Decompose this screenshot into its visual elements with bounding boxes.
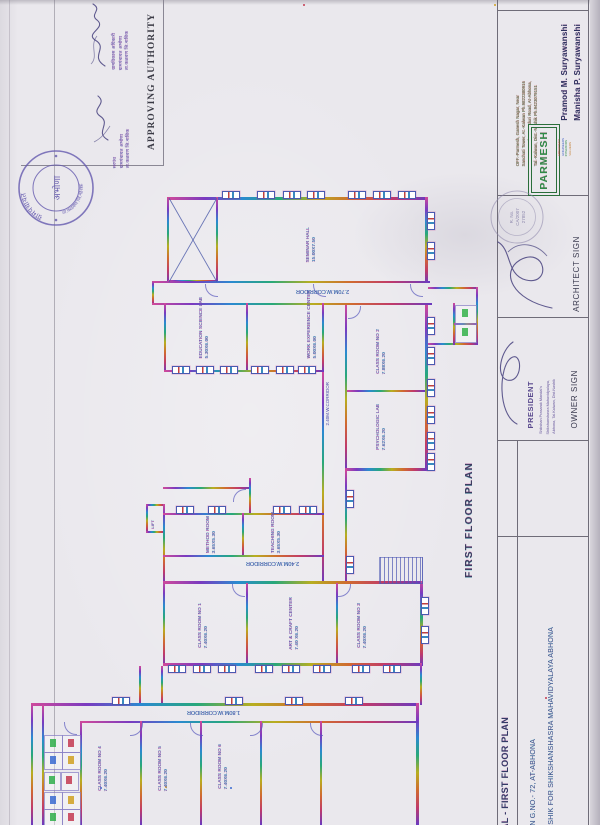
window <box>427 347 435 365</box>
wall <box>428 287 478 289</box>
room-dim: 15.00X7.50 <box>311 237 317 262</box>
wall <box>425 197 428 283</box>
window <box>427 317 435 335</box>
room-label-teaching-room: TEACHING ROOM 3.65X5.30 <box>270 521 282 553</box>
wall <box>139 666 141 705</box>
wall <box>152 303 432 305</box>
toilet-fixture-icon <box>462 328 468 336</box>
window <box>193 665 211 673</box>
toilet-fixture-icon <box>68 756 74 764</box>
wall <box>140 721 142 825</box>
room-name: LIFT <box>150 520 156 529</box>
toilet-fixture-icon <box>50 739 56 747</box>
toilet-fixture-icon <box>50 796 56 804</box>
room-label-class-room-3: CLASS ROOM NO 3 7.40X6.20 <box>356 596 368 648</box>
door-arc-icon <box>64 722 77 735</box>
corridor-text: 2.40M.W.CORRIDOR <box>325 382 330 426</box>
corridor-label-180: 1.80M.W.CORRIDOR <box>187 709 240 715</box>
corridor-label-270: 2.70M.W.CORRIDOR <box>296 288 349 294</box>
window <box>176 506 194 514</box>
window <box>283 191 301 199</box>
door-arc-icon <box>190 723 203 736</box>
toilet-fixture-icon <box>68 739 74 747</box>
wall <box>345 468 427 471</box>
window <box>307 191 325 199</box>
floor-plan <box>0 0 600 825</box>
room-label-seminar-hall: SEMINAR HALL 15.00X7.50 <box>305 220 317 262</box>
window <box>421 626 429 644</box>
window <box>352 665 370 673</box>
scan-speck <box>545 697 547 699</box>
window <box>196 366 214 374</box>
wall <box>161 666 163 705</box>
window <box>313 665 331 673</box>
wall <box>163 487 251 489</box>
room-label-class-room-6: CLASS ROOM NO 6 7.40X6.20 <box>217 741 229 789</box>
wall <box>420 663 422 705</box>
window <box>299 506 317 514</box>
window <box>427 242 435 260</box>
toilet-fixture-icon <box>50 813 56 821</box>
door-arc-icon <box>310 723 323 736</box>
window <box>208 506 226 514</box>
wall <box>420 581 423 666</box>
window <box>348 191 366 199</box>
window <box>225 697 243 705</box>
wall <box>249 478 251 514</box>
window <box>346 490 354 508</box>
window <box>421 597 429 615</box>
staircase-top <box>168 197 218 283</box>
toilet-fixture-icon <box>462 309 468 317</box>
window <box>282 665 300 673</box>
room-label-class-room-5: CLASS ROOM NO 5 7.40X6.20 <box>157 743 169 791</box>
window <box>346 556 354 574</box>
room-label-lift: LIFT <box>150 509 156 529</box>
window <box>427 212 435 230</box>
room-dim: 7.40X6.20 <box>103 769 109 791</box>
wall <box>246 583 248 664</box>
window <box>345 697 363 705</box>
wall <box>31 703 33 825</box>
wall <box>322 303 324 372</box>
window <box>285 697 303 705</box>
corridor-text: 1.80M.W.CORRIDOR <box>187 709 240 715</box>
plan-caption: FIRST FLOOR PLAN <box>464 466 475 578</box>
door-arc-icon <box>338 584 351 597</box>
toilet-fixture-icon <box>68 813 74 821</box>
window <box>383 665 401 673</box>
window <box>427 453 435 471</box>
wall <box>260 721 262 825</box>
door-arc-icon <box>233 489 246 502</box>
wall <box>146 504 148 533</box>
door-arc-icon <box>410 284 423 297</box>
scan-speck <box>230 787 232 789</box>
room-label-class-room-1: CLASS ROOM NO 1 7.40X6.20 <box>197 596 209 648</box>
room-dim: 5.00X6.00 <box>312 336 318 358</box>
window <box>168 665 186 673</box>
room-dim: 7.40X6.20 <box>362 626 368 648</box>
room-label-work-experience-center: WORK EXPERIENCE CENTER 5.00X6.00 <box>306 308 318 358</box>
wall <box>246 303 248 372</box>
room-label-class-room-2: CLASS ROOM NO 2 7.88X6.20 <box>375 332 387 374</box>
window <box>427 432 435 450</box>
room-dim: 7.40 X6.20 <box>294 626 300 650</box>
scan-speck <box>494 4 496 6</box>
window <box>276 366 294 374</box>
door-arc-icon <box>348 306 361 319</box>
wall <box>200 721 202 825</box>
toilet-fixture-icon <box>68 796 74 804</box>
wall <box>345 305 347 470</box>
wall <box>163 555 324 557</box>
wall <box>164 303 166 372</box>
window <box>298 366 316 374</box>
room-dim: 7.88X6.20 <box>381 352 387 374</box>
toilet-fixture-icon <box>50 756 56 764</box>
wall <box>320 721 322 825</box>
room-dim: 3.65X5.30 <box>276 531 282 553</box>
corridor-text: 2.40M.W.CORRIDOR <box>246 560 299 566</box>
window <box>373 191 391 199</box>
window <box>398 191 416 199</box>
room-label-method-room: METHOD ROOM 3.65X5.30 <box>205 521 217 553</box>
window <box>112 697 130 705</box>
window <box>222 191 240 199</box>
door-arc-icon <box>232 584 245 597</box>
room-dim: 5.30X6.00 <box>204 336 210 358</box>
wall <box>152 281 154 305</box>
window <box>427 406 435 424</box>
corridor-label-240-vertical: 2.40M.W.CORRIDOR <box>325 378 330 426</box>
window <box>427 379 435 397</box>
room-label-class-room-4: CLASS ROOM NO 4 7.40X6.20 <box>97 743 109 791</box>
wall <box>322 372 324 583</box>
toilet-fixture-icon <box>66 776 72 784</box>
room-dim: 7.40X6.20 <box>203 626 209 648</box>
scanned-floor-plan-sheet: APPROVING AUTHORITY ग्रामविकास अधिकारी ग… <box>0 0 600 825</box>
corridor-text: 2.70M.W.CORRIDOR <box>296 288 349 294</box>
wall <box>163 504 165 583</box>
door-arc-icon <box>205 284 218 297</box>
corridor-label-240: 2.40M.W.CORRIDOR <box>246 560 299 566</box>
wall <box>163 581 165 666</box>
window <box>172 366 190 374</box>
window <box>257 191 275 199</box>
room-dim: 7.62X6.20 <box>381 428 387 450</box>
window <box>220 366 238 374</box>
window <box>218 665 236 673</box>
window <box>251 366 269 374</box>
room-label-psychologic-lab: PSYCHOLOGIC LAB 7.62X6.20 <box>375 404 387 450</box>
wall <box>347 390 425 392</box>
plan-caption-text: FIRST FLOOR PLAN <box>464 462 475 578</box>
room-label-art-craft-center: ART & CRAFT CENTER 7.40 X6.20 <box>288 592 300 650</box>
room-label-education-science-lab: EDUCATION SCIENCE LAB 5.30X6.00 <box>198 306 210 358</box>
wall <box>242 513 244 557</box>
room-dim: 3.65X5.30 <box>211 531 217 553</box>
room-dim: 7.40X6.20 <box>163 769 169 791</box>
room-dim: 7.40X6.20 <box>223 767 229 789</box>
staircase-bottom <box>379 557 423 584</box>
window <box>255 665 273 673</box>
scan-speck <box>303 4 305 6</box>
toilet-fixture-icon <box>49 776 55 784</box>
